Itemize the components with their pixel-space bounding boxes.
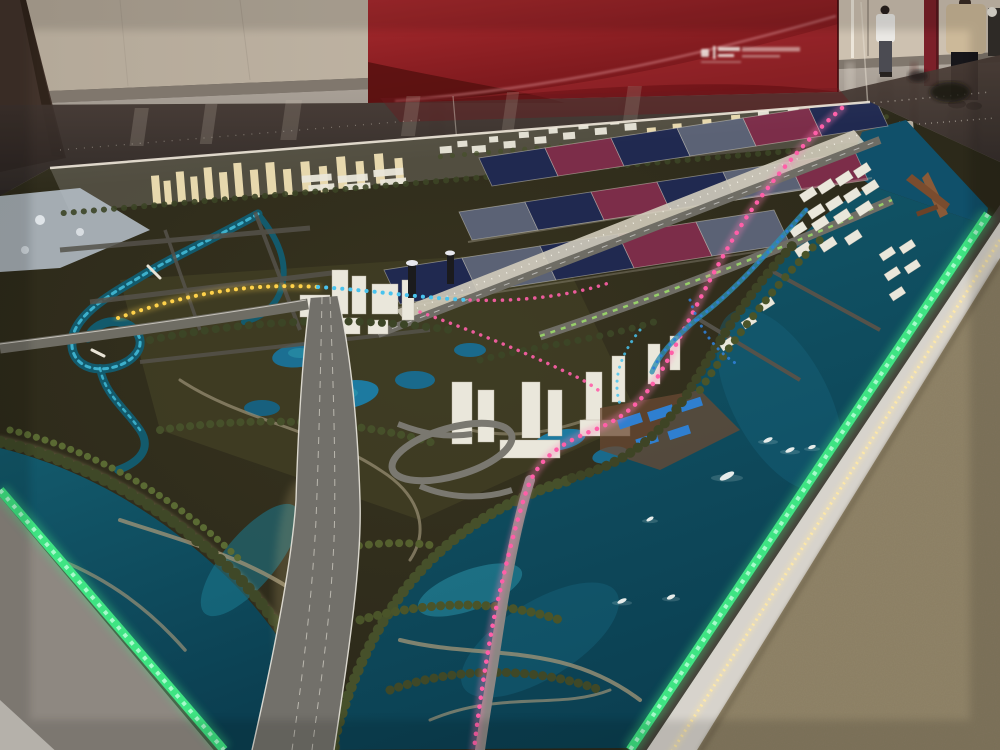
scene-svg [0,0,1000,750]
person-pants [879,41,892,74]
billboard-top [445,251,455,256]
billboard-tower [447,252,454,284]
billboard-tower [408,262,416,298]
billboard-top [406,260,418,266]
feet-reflection [908,70,928,82]
photo-scale-model-exhibit [0,0,1000,750]
feet-reflection [930,82,970,102]
person-shoes [880,72,892,77]
